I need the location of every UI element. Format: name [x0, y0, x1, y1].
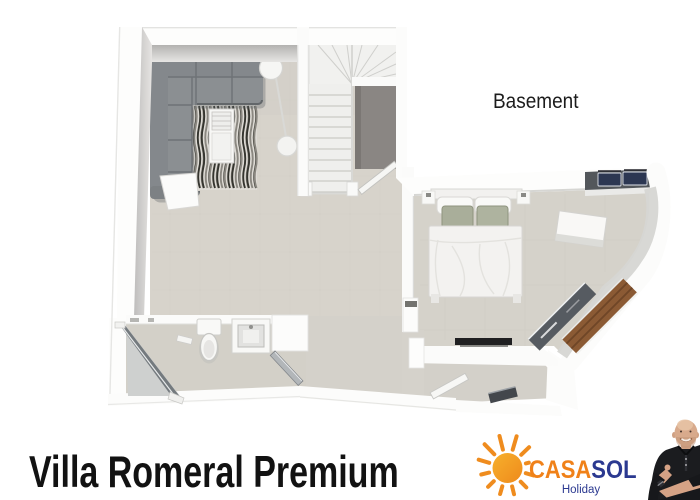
svg-text:CASASOL: CASASOL — [529, 456, 637, 483]
svg-text:Basement: Basement — [493, 90, 579, 113]
svg-text:Holiday: Holiday — [562, 484, 601, 496]
svg-text:Villa Romeral Premium: Villa Romeral Premium — [29, 448, 399, 497]
